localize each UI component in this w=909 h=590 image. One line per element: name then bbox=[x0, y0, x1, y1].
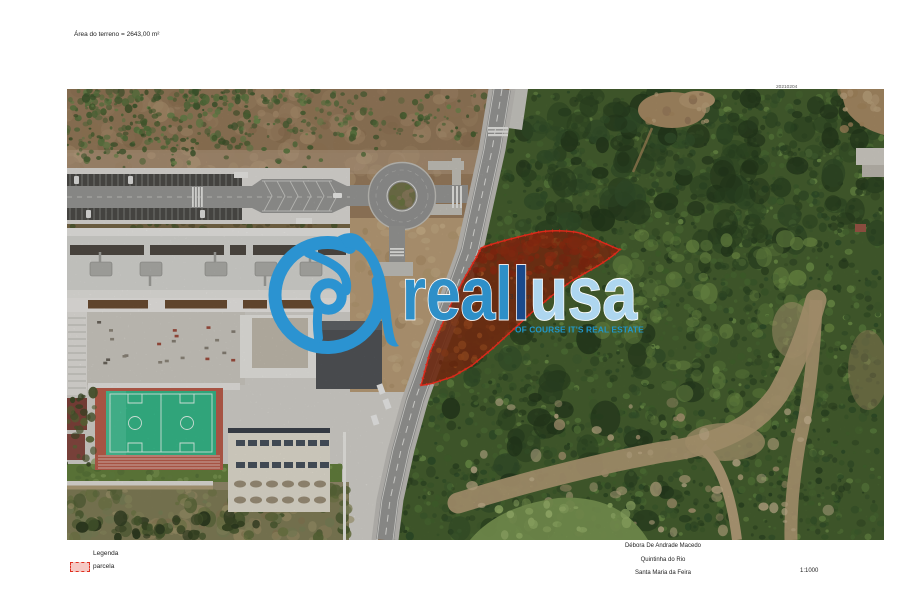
svg-text:reallusa: reallusa bbox=[402, 252, 638, 336]
svg-text:OF COURSE IT'S REAL ESTATE: OF COURSE IT'S REAL ESTATE bbox=[515, 325, 644, 335]
